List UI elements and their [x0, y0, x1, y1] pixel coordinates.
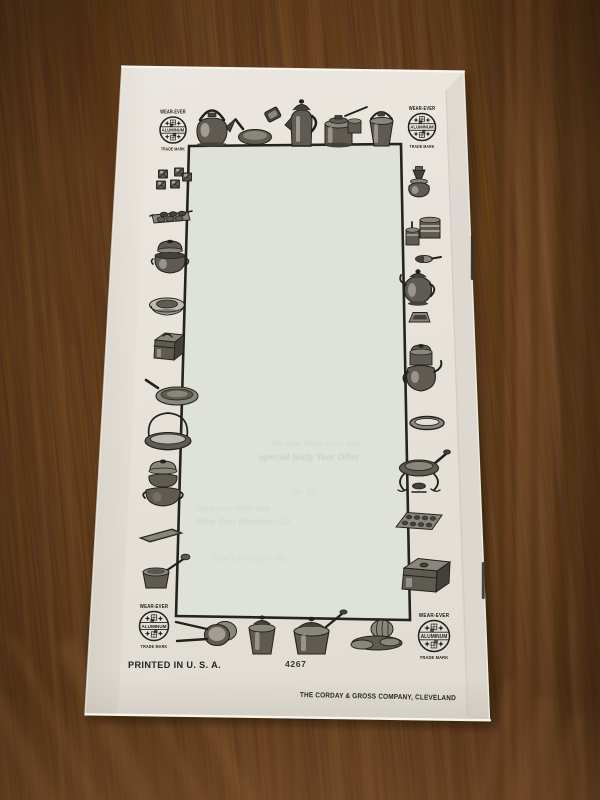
svg-text:4267: 4267	[285, 659, 307, 669]
svg-text:TRADE MARK: TRADE MARK	[420, 655, 449, 660]
svg-text:TRADE MARK: TRADE MARK	[161, 147, 185, 152]
svg-text:ALUMINUM: ALUMINUM	[410, 125, 433, 130]
svg-text:WEAR-EVER: WEAR-EVER	[409, 106, 436, 112]
svg-text:WEAR-EVER: WEAR-EVER	[160, 110, 186, 116]
svg-text:Send your order now: Send your order now	[196, 504, 270, 513]
svg-text:ALUMINUM: ALUMINUM	[421, 634, 448, 640]
svg-text:special Sixty Year Offer: special Sixty Year Offer	[259, 452, 359, 462]
svg-text:TRADE MARK: TRADE MARK	[141, 644, 168, 649]
svg-text:New Kensington, Pa.: New Kensington, Pa.	[213, 554, 288, 563]
svg-text:No. 10: No. 10	[291, 488, 315, 497]
svg-text:ALUMINUM: ALUMINUM	[162, 128, 185, 133]
svg-text:WEAR-EVER: WEAR-EVER	[140, 604, 169, 610]
svg-text:WEAR-EVER: WEAR-EVER	[419, 613, 450, 619]
svg-text:the new Wear-Ever way: the new Wear-Ever way	[271, 438, 362, 448]
svg-text:PRINTED IN U. S. A.: PRINTED IN U. S. A.	[128, 660, 221, 671]
svg-text:Wear-Ever Aluminum Co.: Wear-Ever Aluminum Co.	[196, 516, 292, 526]
svg-text:TRADE MARK: TRADE MARK	[410, 144, 435, 149]
svg-text:ALUMINUM: ALUMINUM	[142, 624, 167, 630]
